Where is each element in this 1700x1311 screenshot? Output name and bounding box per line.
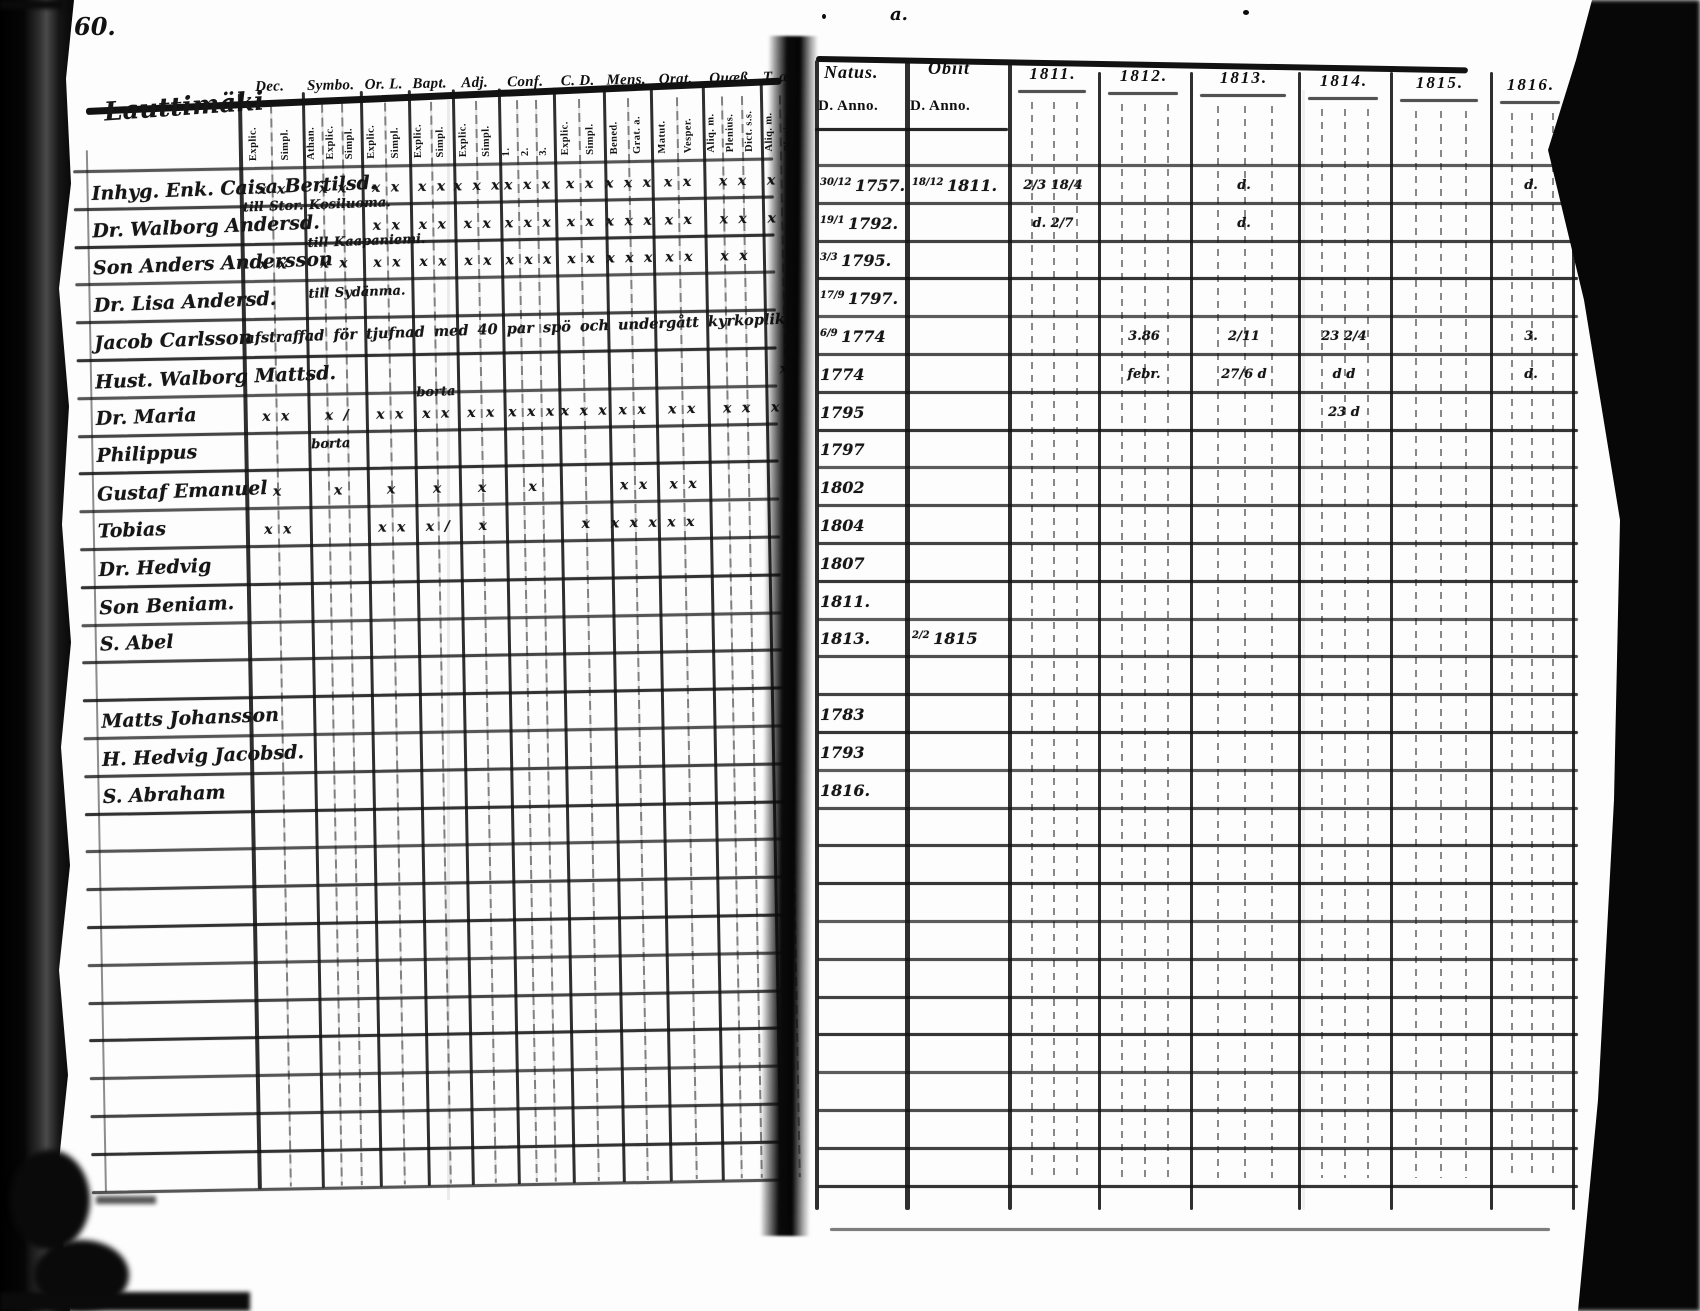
- grid-hline: [830, 1228, 1550, 1231]
- grid-hline: [818, 958, 1578, 961]
- ink-smudge: a.: [890, 4, 908, 25]
- ink-dot: [822, 14, 826, 19]
- year-entry: 23 2/4: [1302, 329, 1386, 344]
- natus-value: 1797: [820, 440, 865, 459]
- natus-header: Natus.: [824, 62, 879, 83]
- year-underline: [1308, 97, 1378, 100]
- ink-dot: [1243, 10, 1249, 15]
- grid-hline: [818, 1071, 1578, 1074]
- natus-value: 1802: [820, 478, 865, 497]
- year-underline: [1400, 99, 1478, 102]
- grid-hline: [818, 353, 1578, 356]
- ink-smear: [0, 1292, 250, 1311]
- year-subline: [1217, 106, 1219, 1178]
- natus-value: 1811.: [820, 592, 870, 611]
- grid-hline: [818, 655, 1578, 658]
- natus-value: 19/1 1792.: [820, 214, 898, 233]
- natus-value: 1807: [820, 554, 865, 573]
- year-subline: [1344, 109, 1346, 1178]
- grid-hline: [818, 807, 1578, 810]
- grid-hline: [818, 164, 1578, 167]
- natus-value: 1816.: [820, 781, 870, 800]
- natus-day: 30/12: [820, 177, 855, 188]
- page-crease: [1302, 90, 1305, 1210]
- grid-hline: [818, 1109, 1578, 1112]
- grid-hline: [818, 996, 1578, 999]
- year-entry: 3.86: [1102, 329, 1186, 344]
- natus-value: 1793: [820, 743, 865, 762]
- year-entry: d.: [1494, 367, 1568, 382]
- year-subline: [1121, 104, 1123, 1178]
- natus-value: 1813.: [820, 629, 870, 648]
- anno-label: D. Anno.: [910, 98, 970, 115]
- year-subline: [1076, 102, 1078, 1178]
- year-entry: d.: [1194, 216, 1294, 231]
- year-entry: d d: [1302, 367, 1386, 382]
- grid-hline: [818, 920, 1578, 923]
- obiit-value: 18/12 1811.: [912, 176, 997, 195]
- year-subline: [1321, 109, 1323, 1178]
- grid-hline: [818, 504, 1578, 507]
- year-entry: 2/3 18/4: [1012, 178, 1094, 193]
- obiit-header: Obiit: [928, 58, 970, 79]
- grid-vline: [1298, 72, 1301, 1210]
- grid-hline: [818, 1033, 1578, 1036]
- obiit-day: 18/12: [912, 177, 947, 188]
- grid-hline: [818, 693, 1578, 696]
- grid-hline: [818, 315, 1578, 318]
- grid-hline: [818, 1147, 1578, 1150]
- natus-day: 19/1: [820, 215, 848, 226]
- natus-value: 1783: [820, 705, 865, 724]
- grid-vline: [1190, 72, 1193, 1210]
- natus-day: 3/3: [820, 252, 841, 263]
- year-label: 1812.: [1098, 66, 1190, 86]
- grid-hline: [818, 240, 1578, 243]
- year-entry: febr.: [1102, 367, 1186, 382]
- year-subline: [1440, 111, 1442, 1178]
- grid-hline: [818, 1185, 1578, 1188]
- header-underline: [815, 128, 1008, 131]
- year-entry: 23 d: [1302, 405, 1386, 420]
- natus-day: 17/9: [820, 290, 848, 301]
- grid-hline: [818, 769, 1578, 772]
- ink-blot: [10, 1150, 90, 1250]
- year-subline: [1531, 113, 1533, 1178]
- year-subline: [1552, 113, 1554, 1178]
- book-gutter: [760, 36, 818, 1236]
- year-label: 1816.: [1490, 75, 1572, 95]
- year-subline: [1167, 104, 1169, 1178]
- year-subline: [1031, 102, 1033, 1178]
- ink-smear: [96, 1196, 156, 1204]
- grid-hline: [818, 844, 1578, 847]
- anno-label: D. Anno.: [818, 98, 878, 115]
- ink-smear: [0, 0, 64, 9]
- year-label: 1815.: [1390, 73, 1490, 93]
- natus-value: 3/3 1795.: [820, 251, 891, 270]
- grid-vline: [1098, 72, 1101, 1210]
- year-subline: [1367, 109, 1369, 1178]
- right-page-grid: Natus.ObiitD. Anno.D. Anno.1811.1812.181…: [0, 0, 1700, 1311]
- page-crease: [447, 100, 450, 1200]
- grid-vline: [1490, 72, 1493, 1210]
- year-entry: 2/11: [1194, 329, 1294, 344]
- grid-hline: [818, 618, 1578, 621]
- year-entry: d. 2/7: [1012, 216, 1094, 231]
- year-subline: [1465, 111, 1467, 1178]
- year-label: 1811.: [1008, 64, 1098, 84]
- grid-hline: [818, 580, 1578, 583]
- year-subline: [1144, 104, 1146, 1178]
- year-subline: [1244, 106, 1246, 1178]
- natus-value: 1804: [820, 516, 865, 535]
- grid-vline: [1008, 60, 1012, 1210]
- grid-hline: [818, 277, 1578, 280]
- grid-vline: [1390, 72, 1393, 1210]
- natus-day: 6/9: [820, 328, 841, 339]
- year-label: 1814.: [1298, 71, 1390, 91]
- grid-hline: [818, 391, 1578, 394]
- grid-hline: [818, 429, 1578, 432]
- year-label: 1813.: [1190, 68, 1298, 88]
- obiit-day: 2/2: [912, 630, 933, 641]
- grid-hline: [818, 731, 1578, 734]
- year-subline: [1271, 106, 1273, 1178]
- grid-hline: [818, 882, 1578, 885]
- natus-value: 17/9 1797.: [820, 289, 898, 308]
- year-entry: 27/6 d: [1194, 367, 1294, 382]
- year-subline: [1053, 102, 1055, 1178]
- scanned-register-spread: 60. Lauttimäki Dec.Explic.Simpl.Symbo.At…: [0, 0, 1700, 1311]
- grid-hline: [818, 542, 1578, 545]
- year-subline: [1415, 111, 1417, 1178]
- grid-hline: [818, 466, 1578, 469]
- grid-vline: [905, 60, 910, 1210]
- natus-value: 6/9 1774: [820, 327, 886, 346]
- year-entry: 3.: [1494, 329, 1568, 344]
- year-entry: d.: [1194, 178, 1294, 193]
- natus-value: 1774: [820, 365, 865, 384]
- natus-value: 1795: [820, 403, 865, 422]
- year-underline: [1500, 101, 1560, 104]
- obiit-value: 2/2 1815: [912, 629, 978, 648]
- year-underline: [1108, 92, 1178, 95]
- year-underline: [1018, 90, 1086, 93]
- year-underline: [1200, 94, 1286, 97]
- year-subline: [1511, 113, 1513, 1178]
- natus-value: 30/12 1757.: [820, 176, 905, 195]
- grid-hline: [818, 202, 1578, 205]
